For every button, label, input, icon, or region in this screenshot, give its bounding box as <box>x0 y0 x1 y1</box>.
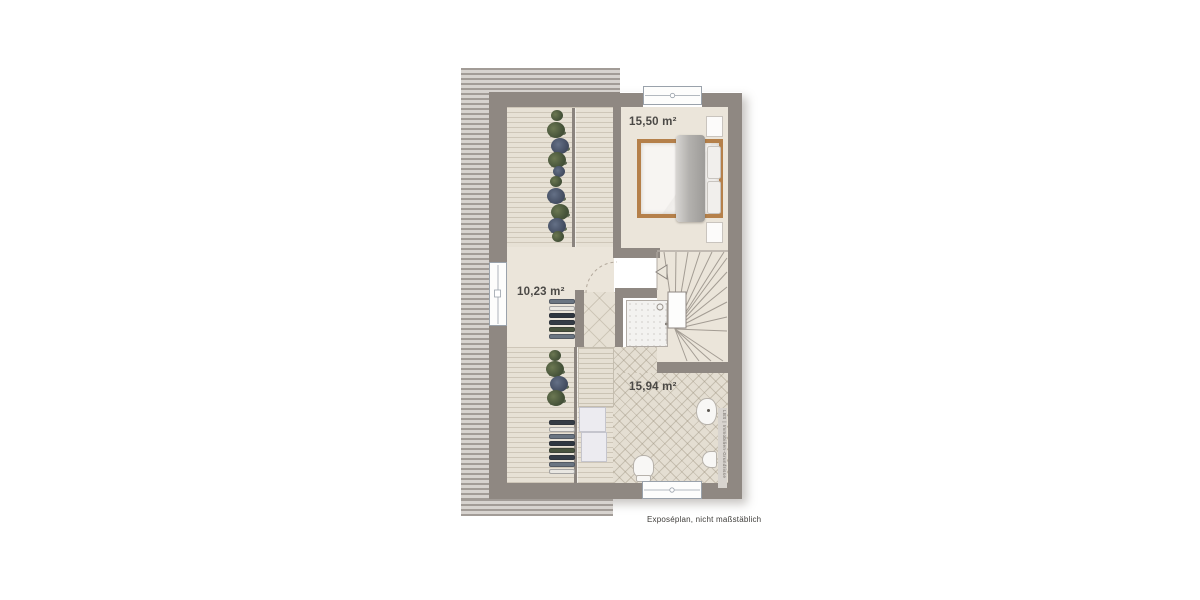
room-area-label-bathroom: 15,94 m² <box>629 381 677 393</box>
plan-caption: Exposéplan, nicht maßstäblich <box>647 515 761 524</box>
door-swing-arc <box>586 262 617 293</box>
room-area-label-attic-room: 10,23 m² <box>517 286 565 298</box>
shower-head-icon <box>657 304 663 310</box>
window-handle-icon <box>670 488 674 492</box>
room-area-label-bedroom: 15,50 m² <box>629 116 677 128</box>
plan-symbols <box>455 60 750 525</box>
window-handle-icon <box>495 290 501 297</box>
window-handle-icon <box>670 93 674 97</box>
stair-void <box>668 292 686 328</box>
watermark-text: LBS | Immobilien-Grundrisse <box>720 410 727 486</box>
stair-direction-arrow-icon <box>656 265 667 279</box>
floorplan-page: 15,50 m² 10,23 m² 15,94 m² LBS | Immobil… <box>0 0 1200 600</box>
